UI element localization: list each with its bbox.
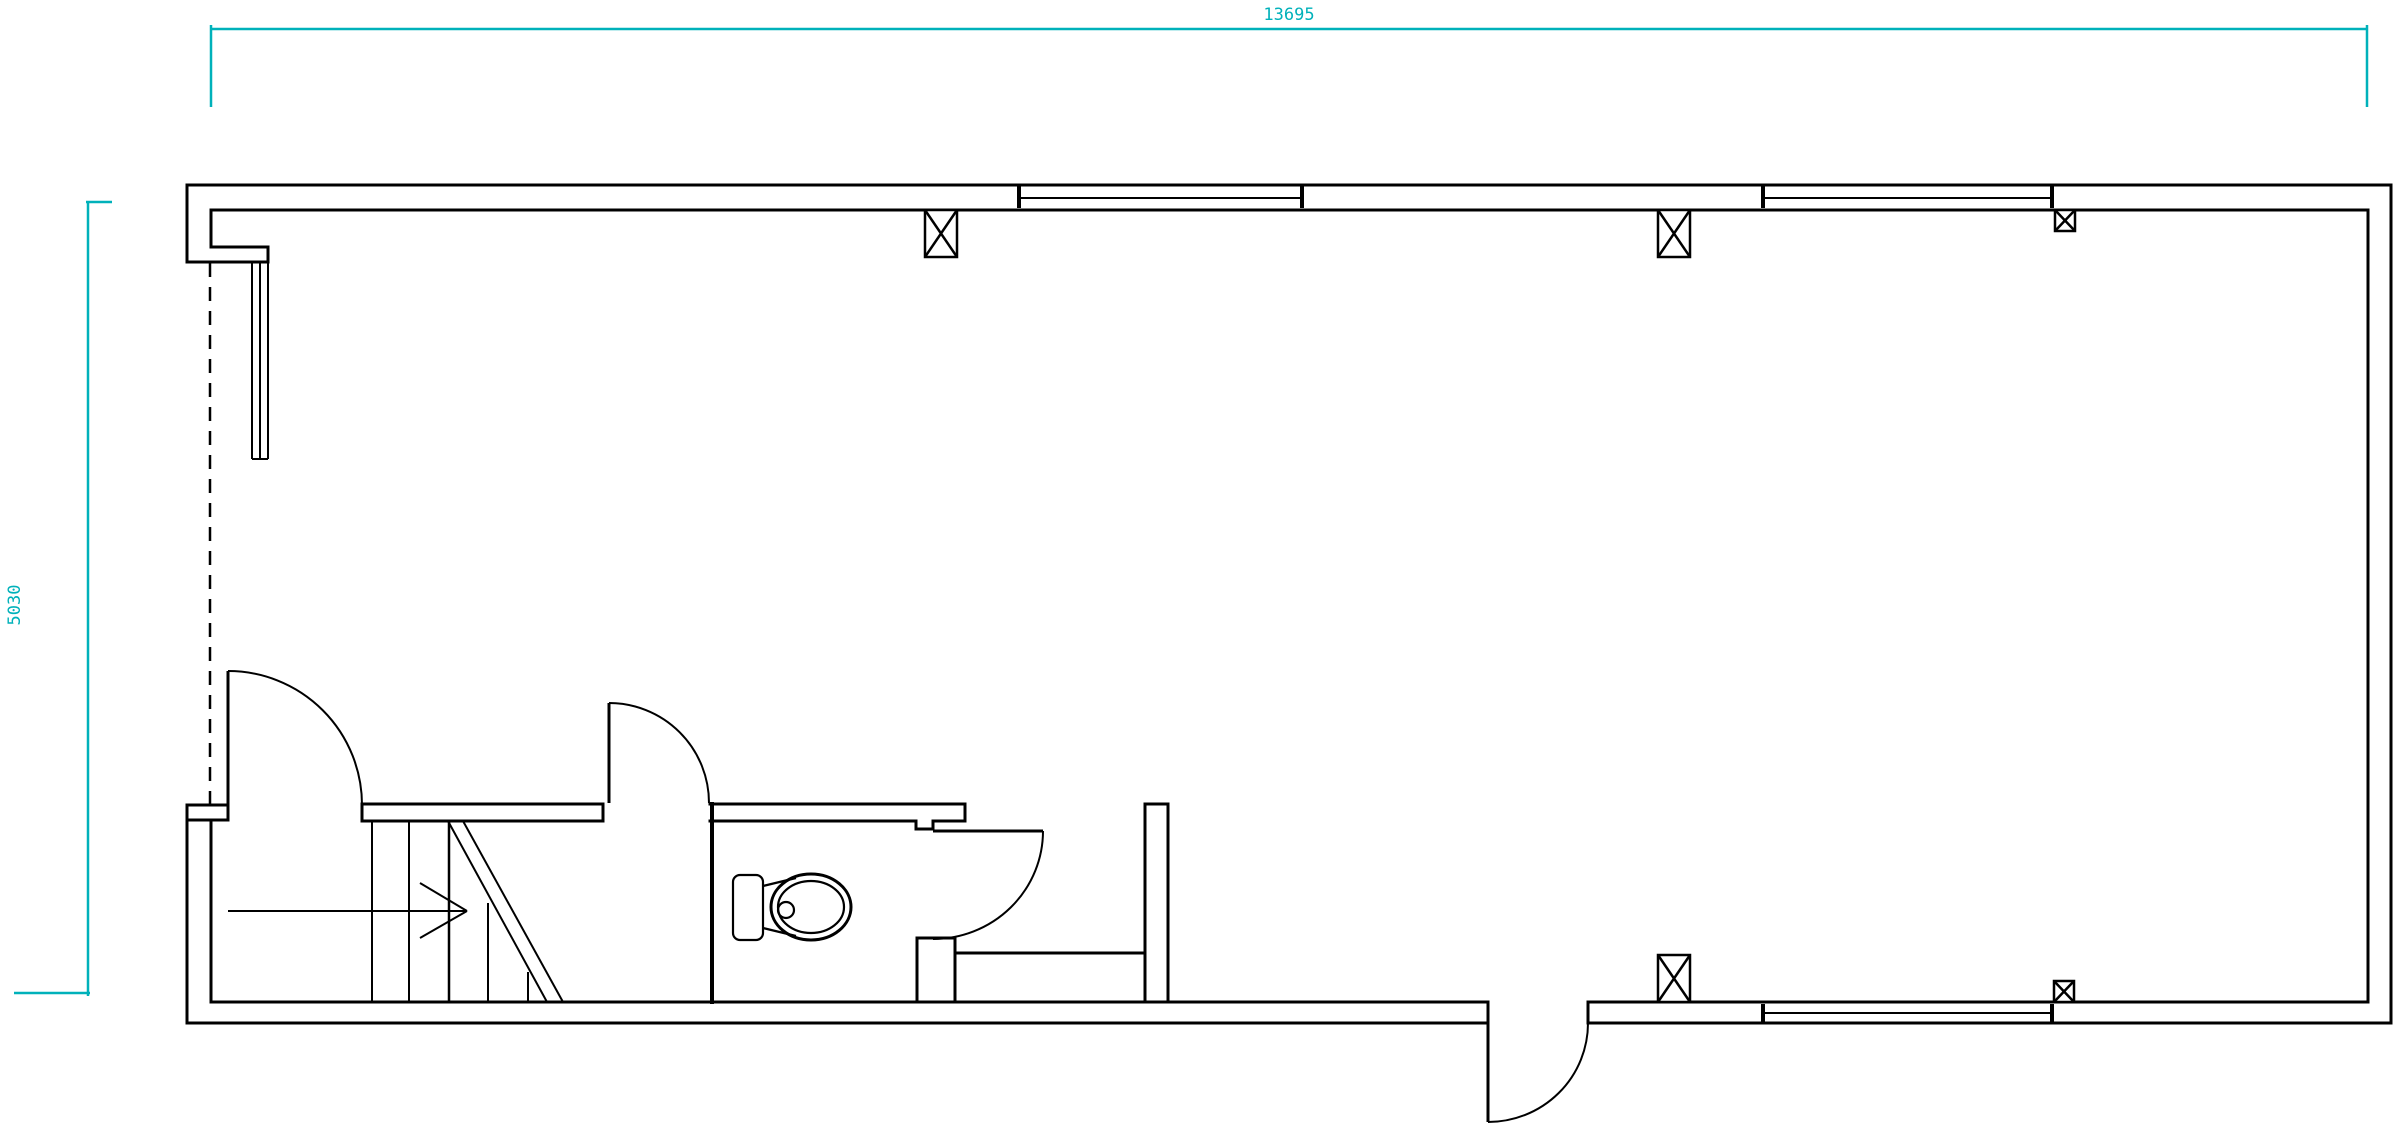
floor-plan-drawing: 13695 5030: [0, 0, 2404, 1136]
floor-plan-sheet: 13695 5030: [0, 0, 2404, 1136]
doors-segment: [609, 703, 709, 803]
doors: [228, 671, 1588, 1122]
toilet-fixture-segment: [771, 874, 851, 940]
windows: [1019, 185, 2052, 1023]
toilet-fixture-segment: [778, 902, 794, 918]
stairs-segment: [420, 883, 467, 911]
interior-walls: [187, 804, 1168, 1002]
dimension-label-width: 13695: [1263, 5, 1314, 25]
exterior-walls: [187, 185, 2391, 1023]
columns: [925, 210, 2075, 1002]
dimension-label-height: 5030: [5, 585, 25, 626]
left-entry-mullion: [252, 263, 268, 459]
stairs-segment: [420, 911, 467, 938]
stairs: [228, 821, 563, 1002]
dimension-lines: [14, 25, 2367, 996]
interior-walls-segment: [917, 938, 955, 1002]
stairs-segment: [463, 821, 563, 1002]
interior-walls-segment: [1145, 804, 1168, 1002]
toilet-fixture-segment: [778, 881, 844, 933]
toilet-fixture: [733, 874, 851, 940]
doors-segment: [228, 671, 362, 805]
plan-geometry: [14, 25, 2391, 1122]
interior-walls-segment: [187, 805, 228, 820]
toilet-fixture-segment: [733, 875, 763, 940]
doors-segment: [1488, 1023, 1588, 1122]
interior-walls-segment: [955, 953, 1145, 1002]
doors-segment: [933, 831, 1043, 939]
